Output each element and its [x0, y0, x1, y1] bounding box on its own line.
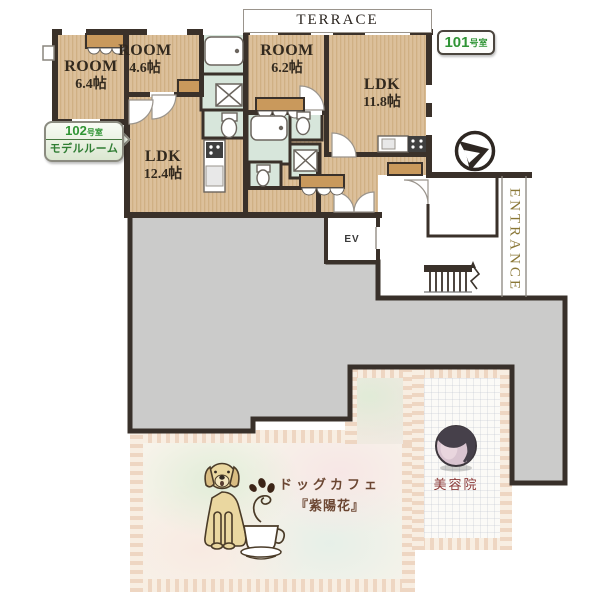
- kitchen-101: [378, 136, 426, 152]
- terrace-box: TERRACE: [243, 9, 432, 33]
- room-6-2-label: ROOM 6.2帖: [251, 42, 323, 78]
- elevator-label: EV: [326, 216, 378, 262]
- dog-cafe-label: ドッグカフェ 『紫陽花』: [268, 474, 392, 514]
- bathtub-102: [205, 37, 243, 65]
- floorplan-canvas: TERRACE: [0, 0, 600, 600]
- ldk-11-8-label: LDK 11.8帖: [338, 76, 426, 112]
- dog-cafe-frame-left: [130, 430, 143, 592]
- terrace-label: TERRACE: [244, 10, 431, 31]
- bathtub-101: [251, 116, 287, 140]
- toilet-101b: [257, 165, 270, 186]
- washer-102: [216, 84, 242, 106]
- unit-102-badge: 102号室 モデルルーム: [44, 121, 124, 162]
- toilet-102: [222, 113, 238, 138]
- compass-icon: [457, 133, 494, 172]
- ldk-12-4-label: LDK 12.4帖: [119, 148, 207, 184]
- toilet-101a: [297, 112, 311, 135]
- unit-101-badge: 101号室: [437, 30, 495, 55]
- extension-floor: [357, 378, 403, 444]
- extension-frame-left: [345, 366, 357, 444]
- stairs: [424, 261, 479, 292]
- kitchen-102: [204, 140, 225, 192]
- stair-hall: [428, 177, 497, 236]
- salon-label: 美容院: [426, 474, 486, 493]
- room-4-6-label: ROOM 4.6帖: [109, 42, 181, 78]
- dog-cafe-upper-extension: [345, 366, 415, 444]
- washer-101: [294, 150, 317, 171]
- unit-102-subtitle: モデルルーム: [46, 140, 122, 158]
- salon-frame-left: [412, 366, 424, 550]
- unit-102-number-row: 102号室: [46, 123, 122, 140]
- salon-frame-right: [500, 366, 512, 550]
- salon-floor: [424, 378, 500, 538]
- salon-area: [412, 366, 512, 550]
- entrance-label: ENTRANCE: [506, 188, 523, 292]
